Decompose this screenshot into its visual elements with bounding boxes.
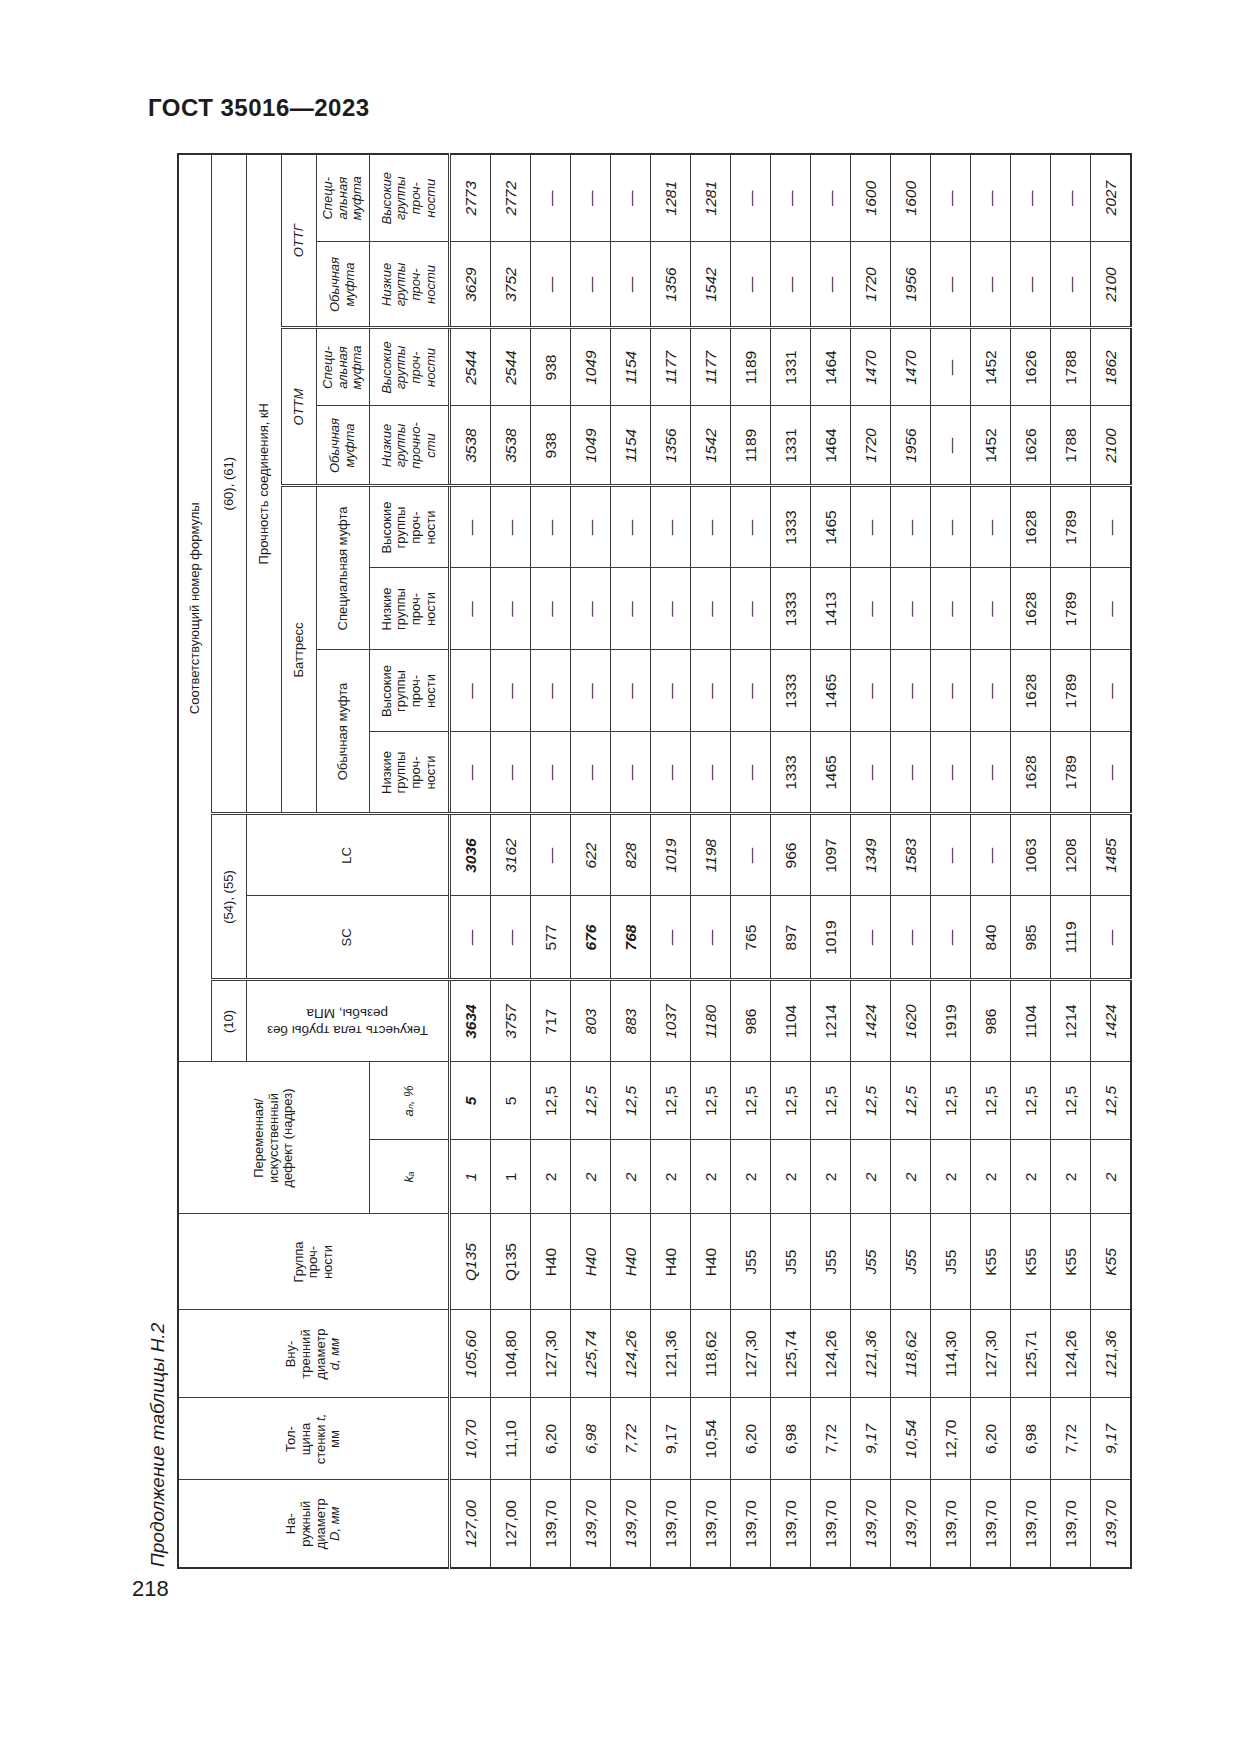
col-header-ottm-high: Высокие группы проч- ности <box>370 328 450 406</box>
table-cell: 768 <box>611 896 651 980</box>
table-cell: 2 <box>611 1140 651 1214</box>
table-cell: — <box>1051 242 1091 328</box>
table-cell: 2 <box>931 1140 971 1214</box>
table-cell: 1333 <box>771 732 811 814</box>
table-cell: — <box>651 650 691 732</box>
table-header: На- ружный диаметр D, мм Тол- щина стенк… <box>178 154 450 1568</box>
header-buttress-special-coupling: Специальная муфта <box>317 486 370 650</box>
table-cell: 127,30 <box>531 1310 571 1398</box>
table-cell: 1281 <box>651 154 691 242</box>
table-cell: — <box>971 732 1011 814</box>
table-cell: — <box>811 242 851 328</box>
table-cell: 1465 <box>811 732 851 814</box>
table-cell: 1049 <box>571 328 611 406</box>
table-cell: 1104 <box>1011 980 1051 1062</box>
table-cell: H40 <box>691 1214 731 1310</box>
table-cell: 127,30 <box>971 1310 1011 1398</box>
table-cell: 5 <box>450 1062 491 1140</box>
header-formula-60-61: (60), (61) <box>212 154 247 814</box>
data-table: На- ружный диаметр D, мм Тол- щина стенк… <box>177 153 1132 1569</box>
table-cell: — <box>651 486 691 568</box>
table-cell: 124,26 <box>811 1310 851 1398</box>
col-header-body-yield: Текучесть тела трубы без резьбы, МПа <box>247 980 450 1062</box>
table-cell: — <box>931 406 971 486</box>
table-cell: 1542 <box>691 406 731 486</box>
document-page: ГОСТ 35016—2023 218 Продолжение таблицы … <box>0 0 1241 1754</box>
table-cell: 6,20 <box>971 1398 1011 1480</box>
table-cell: — <box>1091 568 1132 650</box>
table-cell: 12,5 <box>931 1062 971 1140</box>
col-header-ottg-high: Высокие группы проч- ности <box>370 154 450 242</box>
table-cell: — <box>891 486 931 568</box>
table-cell: — <box>491 568 531 650</box>
table-cell: — <box>1051 154 1091 242</box>
table-cell: — <box>891 650 931 732</box>
table-cell: 1180 <box>691 980 731 1062</box>
table-cell: — <box>1091 650 1132 732</box>
table-cell: — <box>531 814 571 896</box>
table-cell: 2773 <box>450 154 491 242</box>
table-cell: 3036 <box>450 814 491 896</box>
col-header-sc: SC <box>247 896 450 980</box>
table-cell: 676 <box>571 896 611 980</box>
table-cell: — <box>931 328 971 406</box>
table-cell: 12,5 <box>531 1062 571 1140</box>
table-cell: 6,98 <box>771 1398 811 1480</box>
table-cell: — <box>731 242 771 328</box>
table-cell: 105,60 <box>450 1310 491 1398</box>
table-cell: 12,5 <box>731 1062 771 1140</box>
table-caption: Продолжение таблицы Н.2 <box>147 149 170 1567</box>
table-cell: 139,70 <box>611 1480 651 1568</box>
table-row: 139,707,72124,26J55212,51214101910971465… <box>811 154 851 1568</box>
table-cell: 12,5 <box>971 1062 1011 1140</box>
table-cell: — <box>931 896 971 980</box>
table-cell: 2 <box>771 1140 811 1214</box>
table-cell: — <box>891 896 931 980</box>
col-header-wall-thickness: Тол- щина стенки t, мм <box>178 1398 450 1480</box>
table-cell: K55 <box>971 1214 1011 1310</box>
table-cell: — <box>1091 486 1132 568</box>
table-cell: — <box>611 154 651 242</box>
table-cell: — <box>731 568 771 650</box>
table-cell: — <box>851 486 891 568</box>
table-cell: — <box>450 732 491 814</box>
table-row: 139,7012,70114,30J55212,51919—————————— <box>931 154 971 1568</box>
table-cell: 118,62 <box>891 1310 931 1398</box>
table-cell: 1789 <box>1051 486 1091 568</box>
table-cell: 3162 <box>491 814 531 896</box>
table-cell: 7,72 <box>1051 1398 1091 1480</box>
table-cell: — <box>450 896 491 980</box>
table-cell: — <box>491 650 531 732</box>
table-row: 127,0011,10104,80Q135153757—3162————3538… <box>491 154 531 1568</box>
table-cell: 2 <box>851 1140 891 1214</box>
table-cell: 104,80 <box>491 1310 531 1398</box>
table-cell: 1464 <box>811 328 851 406</box>
table-cell: 125,74 <box>571 1310 611 1398</box>
table-cell: H40 <box>611 1214 651 1310</box>
table-cell: — <box>731 814 771 896</box>
header-ottg-special-coupling: Специ- альная муфта <box>317 154 370 242</box>
table-cell: 1 <box>450 1140 491 1214</box>
table-cell: 622 <box>571 814 611 896</box>
table-cell: 1600 <box>891 154 931 242</box>
table-cell: 1465 <box>811 650 851 732</box>
table-cell: 2027 <box>1091 154 1132 242</box>
table-cell: 1154 <box>611 406 651 486</box>
table-row: 139,706,20127,30H40212,5717577—————93893… <box>531 154 571 1568</box>
table-cell: — <box>571 568 611 650</box>
table-row: 139,706,98125,71K55212,51104985106316281… <box>1011 154 1051 1568</box>
table-cell: 5 <box>491 1062 531 1140</box>
page-number: 218 <box>132 1576 169 1602</box>
table-cell: J55 <box>811 1214 851 1310</box>
table-cell: 2772 <box>491 154 531 242</box>
table-cell: 125,74 <box>771 1310 811 1398</box>
table-cell: 124,26 <box>1051 1310 1091 1398</box>
table-cell: 124,26 <box>611 1310 651 1398</box>
table-cell: 1465 <box>811 486 851 568</box>
table-cell: 1956 <box>891 242 931 328</box>
table-cell: — <box>691 896 731 980</box>
table-cell: 1628 <box>1011 486 1051 568</box>
table-cell: 1628 <box>1011 650 1051 732</box>
table-cell: 2 <box>891 1140 931 1214</box>
table-cell: — <box>691 486 731 568</box>
table-cell: 12,5 <box>611 1062 651 1140</box>
table-cell: 127,00 <box>491 1480 531 1568</box>
table-cell: 139,70 <box>531 1480 571 1568</box>
table-cell: 2100 <box>1091 406 1132 486</box>
table-cell: 12,5 <box>691 1062 731 1140</box>
table-cell: — <box>931 568 971 650</box>
table-cell: 966 <box>771 814 811 896</box>
table-cell: — <box>611 650 651 732</box>
col-header-ka: kₐ <box>370 1140 450 1214</box>
table-cell: H40 <box>531 1214 571 1310</box>
table-row: 139,706,98125,74J55212,51104897966133313… <box>771 154 811 1568</box>
table-cell: 9,17 <box>651 1398 691 1480</box>
table-cell: — <box>931 154 971 242</box>
table-cell: 121,36 <box>1091 1310 1132 1398</box>
table-cell: — <box>931 242 971 328</box>
table-cell: — <box>971 242 1011 328</box>
table-cell: 2 <box>971 1140 1011 1214</box>
table-cell: — <box>531 242 571 328</box>
table-cell: 1470 <box>891 328 931 406</box>
table-cell: 1214 <box>1051 980 1091 1062</box>
table-cell: 9,17 <box>851 1398 891 1480</box>
col-header-strength-grade: Группа проч- ности <box>178 1214 450 1310</box>
table-cell: 127,30 <box>731 1310 771 1398</box>
table-cell: 1097 <box>811 814 851 896</box>
table-cell: 1189 <box>731 406 771 486</box>
table-cell: J55 <box>891 1214 931 1310</box>
table-cell: 1413 <box>811 568 851 650</box>
table-cell: 765 <box>731 896 771 980</box>
table-cell: 2 <box>1051 1140 1091 1214</box>
table-cell: — <box>851 732 891 814</box>
table-cell: — <box>611 242 651 328</box>
table-cell: — <box>971 486 1011 568</box>
table-cell: 11,10 <box>491 1398 531 1480</box>
table-cell: — <box>531 650 571 732</box>
table-cell: — <box>571 650 611 732</box>
table-cell: K55 <box>1051 1214 1091 1310</box>
table-cell: 2 <box>1011 1140 1051 1214</box>
table-cell: 1464 <box>811 406 851 486</box>
table-cell: 986 <box>971 980 1011 1062</box>
table-cell: 139,70 <box>931 1480 971 1568</box>
table-cell: 1583 <box>891 814 931 896</box>
table-cell: J55 <box>851 1214 891 1310</box>
table-cell: — <box>731 732 771 814</box>
table-cell: 3757 <box>491 980 531 1062</box>
table-cell: 6,98 <box>1011 1398 1051 1480</box>
table-cell: 986 <box>731 980 771 1062</box>
table-cell: — <box>771 154 811 242</box>
table-cell: 139,70 <box>691 1480 731 1568</box>
table-cell: 1356 <box>651 242 691 328</box>
table-cell: — <box>651 896 691 980</box>
table-cell: 139,70 <box>571 1480 611 1568</box>
table-cell: 1600 <box>851 154 891 242</box>
table-cell: 114,30 <box>931 1310 971 1398</box>
table-cell: 1788 <box>1051 406 1091 486</box>
table-cell: 1333 <box>771 650 811 732</box>
col-header-buttress-special-high: Высокие группы проч- ности <box>370 486 450 568</box>
table-cell: 1424 <box>851 980 891 1062</box>
table-cell: — <box>771 242 811 328</box>
table-cell: 1626 <box>1011 406 1051 486</box>
table-cell: 1198 <box>691 814 731 896</box>
table-cell: — <box>491 486 531 568</box>
table-cell: 1452 <box>971 328 1011 406</box>
header-buttress: Баттресс <box>282 486 317 814</box>
table-cell: — <box>531 154 571 242</box>
table-cell: 3538 <box>491 406 531 486</box>
table-row: 139,706,20127,30J55212,5986765—————11891… <box>731 154 771 1568</box>
table-cell: 2 <box>811 1140 851 1214</box>
table-row: 139,7010,54118,62J55212,51620—1583————19… <box>891 154 931 1568</box>
table-cell: — <box>691 650 731 732</box>
table-cell: — <box>531 732 571 814</box>
table-cell: 2 <box>691 1140 731 1214</box>
table-cell: 12,5 <box>651 1062 691 1140</box>
table-cell: — <box>971 154 1011 242</box>
table-cell: 1485 <box>1091 814 1132 896</box>
table-cell: 1037 <box>651 980 691 1062</box>
header-ottg-usual-coupling: Обычная муфта <box>317 242 370 328</box>
table-cell: 2 <box>651 1140 691 1214</box>
table-cell: 139,70 <box>771 1480 811 1568</box>
table-cell: 897 <box>771 896 811 980</box>
table-cell: — <box>1091 732 1132 814</box>
table-cell: 7,72 <box>611 1398 651 1480</box>
table-cell: — <box>971 568 1011 650</box>
table-cell: 139,70 <box>731 1480 771 1568</box>
header-formula-10: (10) <box>212 980 247 1062</box>
table-cell: 1862 <box>1091 328 1132 406</box>
table-cell: 10,54 <box>891 1398 931 1480</box>
col-header-outer-diameter: На- ружный диаметр D, мм <box>178 1480 450 1568</box>
table-cell: 9,17 <box>1091 1398 1132 1480</box>
table-cell: — <box>811 154 851 242</box>
table-cell: 2 <box>731 1140 771 1214</box>
table-cell: 1424 <box>1091 980 1132 1062</box>
table-cell: 1789 <box>1051 568 1091 650</box>
table-cell: — <box>1011 242 1051 328</box>
table-cell: 2 <box>1091 1140 1132 1214</box>
table-cell: 12,5 <box>1011 1062 1051 1140</box>
table-cell: 1189 <box>731 328 771 406</box>
table-cell: H40 <box>651 1214 691 1310</box>
table-cell: 12,5 <box>1091 1062 1132 1140</box>
table-row: 139,707,72124,26K55212,51214111912081789… <box>1051 154 1091 1568</box>
table-cell: 12,5 <box>851 1062 891 1140</box>
header-formula-number: Соответствующий номер формулы <box>178 154 212 1062</box>
table-cell: — <box>571 486 611 568</box>
table-cell: 1104 <box>771 980 811 1062</box>
table-cell: — <box>651 732 691 814</box>
table-cell: 139,70 <box>851 1480 891 1568</box>
col-header-buttress-usual-high: Высокие группы проч- ности <box>370 650 450 732</box>
table-cell: — <box>931 814 971 896</box>
table-cell: — <box>491 896 531 980</box>
table-cell: 883 <box>611 980 651 1062</box>
table-cell: 1154 <box>611 328 651 406</box>
table-cell: 1720 <box>851 406 891 486</box>
table-cell: 1626 <box>1011 328 1051 406</box>
col-header-lc: LC <box>247 814 450 896</box>
table-cell: 3538 <box>450 406 491 486</box>
table-cell: — <box>891 732 931 814</box>
table-cell: 12,5 <box>1051 1062 1091 1140</box>
table-cell: — <box>571 242 611 328</box>
table-cell: 2 <box>531 1140 571 1214</box>
table-row: 139,706,98125,74H40212,5803676622————104… <box>571 154 611 1568</box>
table-cell: — <box>731 486 771 568</box>
table-row: 139,709,17121,36H40212,51037—1019————135… <box>651 154 691 1568</box>
table-cell: 139,70 <box>811 1480 851 1568</box>
table-cell: 121,36 <box>651 1310 691 1398</box>
col-header-ottg-low: Низкие группы проч- ности <box>370 242 450 328</box>
table-cell: 12,5 <box>891 1062 931 1140</box>
col-header-ottm-low: Низкие группы прочно- сти <box>370 406 450 486</box>
table-cell: 2544 <box>491 328 531 406</box>
table-cell: 1177 <box>651 328 691 406</box>
table-cell: 1720 <box>851 242 891 328</box>
table-cell: — <box>851 568 891 650</box>
table-cell: 1208 <box>1051 814 1091 896</box>
table-cell: — <box>571 732 611 814</box>
table-cell: Q135 <box>450 1214 491 1310</box>
table-cell: 1119 <box>1051 896 1091 980</box>
table-cell: — <box>531 486 571 568</box>
table-cell: J55 <box>771 1214 811 1310</box>
table-cell: 12,5 <box>811 1062 851 1140</box>
table-cell: 1333 <box>771 568 811 650</box>
table-cell: — <box>1091 896 1132 980</box>
table-cell: 717 <box>531 980 571 1062</box>
table-cell: 1628 <box>1011 732 1051 814</box>
table-cell: 1452 <box>971 406 1011 486</box>
table-cell: 1331 <box>771 328 811 406</box>
table-cell: 1789 <box>1051 732 1091 814</box>
table-cell: K55 <box>1011 1214 1051 1310</box>
table-cell: 1063 <box>1011 814 1051 896</box>
header-formula-54-55: (54), (55) <box>212 814 247 980</box>
header-ottg: ОТТГ <box>282 154 317 328</box>
col-header-an: aₙ, % <box>370 1062 450 1140</box>
table-cell: 139,70 <box>1091 1480 1132 1568</box>
table-cell: — <box>971 650 1011 732</box>
table-cell: 1281 <box>691 154 731 242</box>
table-cell: 1177 <box>691 328 731 406</box>
table-cell: H40 <box>571 1214 611 1310</box>
table-cell: 10,70 <box>450 1398 491 1480</box>
table-cell: K55 <box>1091 1214 1132 1310</box>
table-cell: 577 <box>531 896 571 980</box>
table-cell: — <box>450 568 491 650</box>
table-cell: 7,72 <box>811 1398 851 1480</box>
table-cell: 10,54 <box>691 1398 731 1480</box>
table-cell: — <box>731 154 771 242</box>
table-cell: 1333 <box>771 486 811 568</box>
table-cell: 3752 <box>491 242 531 328</box>
table-cell: 1628 <box>1011 568 1051 650</box>
table-cell: 127,00 <box>450 1480 491 1568</box>
header-ottm-special-coupling: Специ- альная муфта <box>317 328 370 406</box>
table-cell: — <box>971 814 1011 896</box>
table-cell: 118,62 <box>691 1310 731 1398</box>
table-cell: — <box>611 486 651 568</box>
table-cell: 1 <box>491 1140 531 1214</box>
table-cell: — <box>571 154 611 242</box>
col-header-inner-diameter: Вну- тренний диаметр d, мм <box>178 1310 450 1398</box>
table-cell: — <box>450 650 491 732</box>
header-connection-strength: Прочность соединения, кН <box>247 154 282 814</box>
table-cell: — <box>931 486 971 568</box>
table-cell: 139,70 <box>971 1480 1011 1568</box>
table-cell: 12,5 <box>771 1062 811 1140</box>
table-cell: 1788 <box>1051 328 1091 406</box>
standard-title: ГОСТ 35016—2023 <box>148 94 370 122</box>
table-cell: 139,70 <box>1011 1480 1051 1568</box>
table-row: 127,0010,70105,60Q135153634—3036————3538… <box>450 154 491 1568</box>
table-cell: 1049 <box>571 406 611 486</box>
table-cell: 6,20 <box>731 1398 771 1480</box>
table-cell: 938 <box>531 328 571 406</box>
table-cell: 1470 <box>851 328 891 406</box>
table-cell: J55 <box>731 1214 771 1310</box>
table-cell: 1620 <box>891 980 931 1062</box>
table-cell: 1349 <box>851 814 891 896</box>
table-cell: 139,70 <box>1051 1480 1091 1568</box>
table-cell: 6,98 <box>571 1398 611 1480</box>
rotated-table-block: Продолжение таблицы Н.2 На- ружный диаме… <box>147 149 1089 1569</box>
table-cell: — <box>651 568 691 650</box>
table-cell: 2100 <box>1091 242 1132 328</box>
table-cell: 840 <box>971 896 1011 980</box>
table-cell: 139,70 <box>891 1480 931 1568</box>
table-cell: — <box>931 650 971 732</box>
col-header-buttress-special-low: Низкие группы проч- ности <box>370 568 450 650</box>
table-cell: 1356 <box>651 406 691 486</box>
table-row: 139,709,17121,36J55212,51424—1349————172… <box>851 154 891 1568</box>
table-cell: 12,5 <box>571 1062 611 1140</box>
